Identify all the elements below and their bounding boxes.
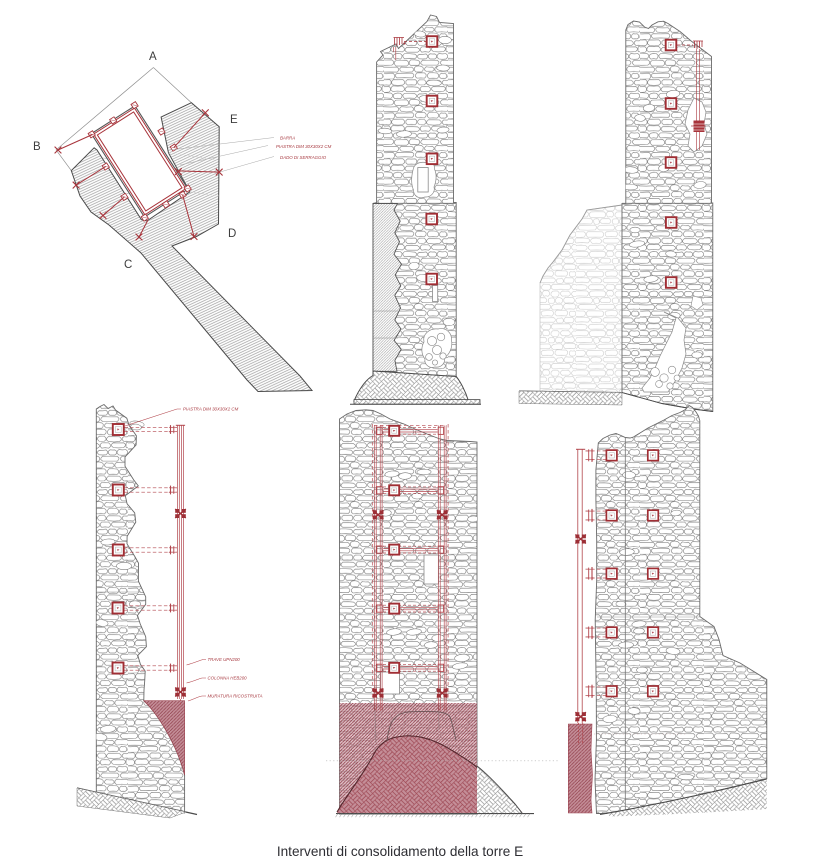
svg-text:E: E xyxy=(230,114,238,126)
svg-text:A: A xyxy=(149,51,157,63)
svg-text:PIASTRA DIM 30X30X2 CM: PIASTRA DIM 30X30X2 CM xyxy=(276,144,332,149)
svg-text:COLONNA HEB200: COLONNA HEB200 xyxy=(208,676,248,681)
svg-text:C: C xyxy=(124,259,132,271)
svg-text:BARRA: BARRA xyxy=(280,136,295,141)
svg-text:Interventi di consolidamento d: Interventi di consolidamento della torre… xyxy=(277,844,523,859)
svg-text:D: D xyxy=(228,228,236,240)
svg-text:TRAVE UPN200: TRAVE UPN200 xyxy=(208,657,241,662)
svg-text:MURATURA RICOSTRUITA: MURATURA RICOSTRUITA xyxy=(208,694,263,699)
svg-text:DADO DI SERRAGGIO: DADO DI SERRAGGIO xyxy=(280,155,327,160)
svg-text:PIASTRA DIM 30X30X2 CM: PIASTRA DIM 30X30X2 CM xyxy=(183,407,239,412)
svg-text:B: B xyxy=(33,141,41,153)
